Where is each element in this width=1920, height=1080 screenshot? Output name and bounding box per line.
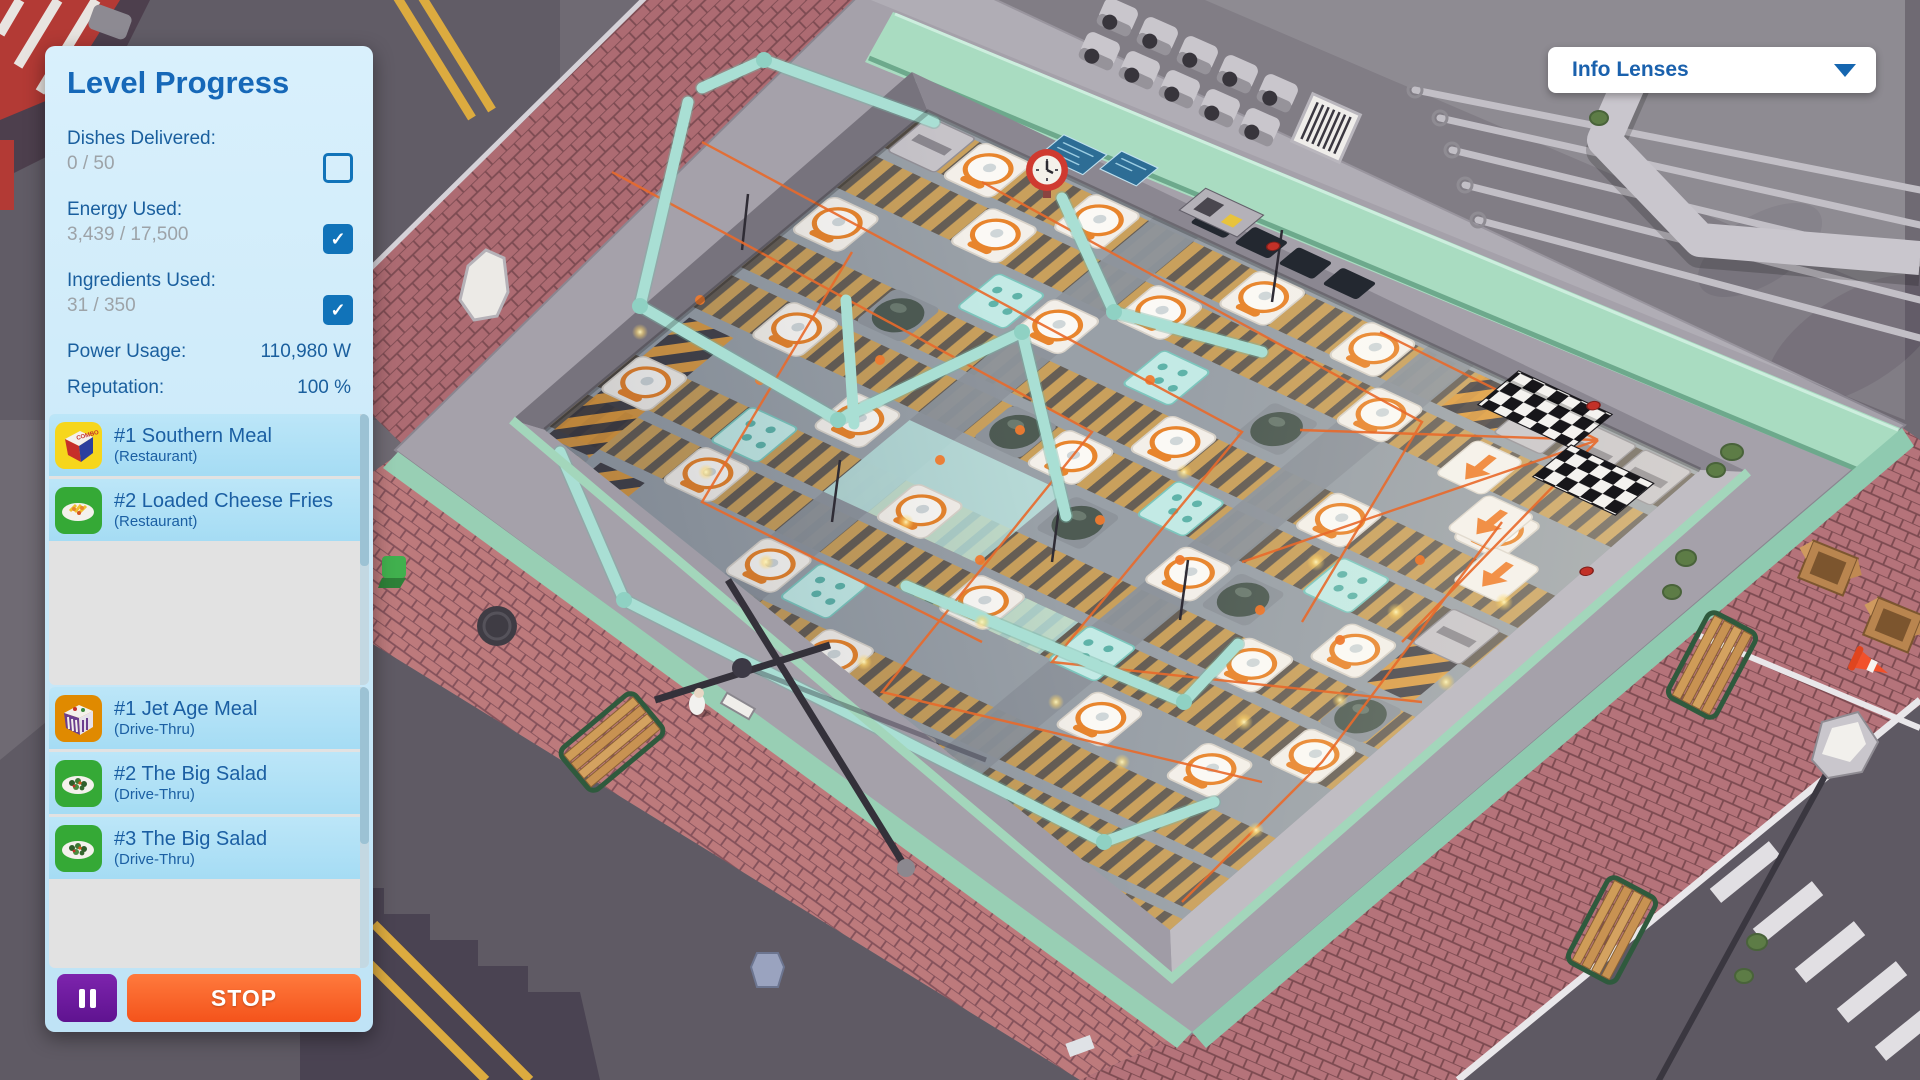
stop-button[interactable]: STOP	[127, 974, 361, 1022]
stats-section: Dishes Delivered: 0 / 50 ✓ Energy Used: …	[45, 126, 373, 318]
stat-ingredients-used: Ingredients Used: 31 / 350 ✓	[45, 268, 373, 318]
stat-checkbox[interactable]: ✓	[323, 224, 353, 254]
salad-plate-icon	[55, 825, 102, 872]
stat-value: 0 / 50	[67, 151, 351, 176]
stat-checkbox[interactable]: ✓	[323, 295, 353, 325]
scrollbar-thumb[interactable]	[360, 687, 369, 844]
order-name: #1 Jet Age Meal	[114, 697, 257, 721]
meter-value: 110,980 W	[261, 339, 351, 364]
order-row[interactable]: #1 Jet Age Meal (Drive-Thru)	[49, 687, 369, 749]
meter-label: Power Usage:	[67, 339, 186, 364]
order-name: #2 The Big Salad	[114, 762, 267, 786]
order-venue: (Drive-Thru)	[114, 786, 267, 804]
stat-value: 31 / 350	[67, 293, 351, 318]
pause-icon	[79, 989, 85, 1008]
stat-checkbox[interactable]: ✓	[323, 153, 353, 183]
order-row[interactable]: #2 Loaded Cheese Fries (Restaurant)	[49, 479, 369, 541]
drive-thru-order-list: #1 Jet Age Meal (Drive-Thru) #2 The Big …	[49, 687, 369, 968]
order-name: #2 Loaded Cheese Fries	[114, 489, 333, 513]
order-venue: (Drive-Thru)	[114, 851, 267, 869]
order-list-scrollbar[interactable]	[360, 414, 369, 685]
pause-button[interactable]	[57, 974, 117, 1022]
order-row[interactable]: #3 The Big Salad (Drive-Thru)	[49, 817, 369, 879]
order-row[interactable]: COMBO #1 Southern Meal (Restaurant)	[49, 414, 369, 476]
order-name: #1 Southern Meal	[114, 424, 272, 448]
stat-label: Energy Used:	[67, 197, 351, 222]
info-lenses-dropdown[interactable]: Info Lenses	[1548, 47, 1876, 93]
stat-label: Ingredients Used:	[67, 268, 351, 293]
power-usage-row: Power Usage: 110,980 W	[45, 339, 373, 364]
info-lenses-label: Info Lenses	[1572, 58, 1834, 82]
order-venue: (Restaurant)	[114, 448, 272, 466]
order-list-scrollbar[interactable]	[360, 687, 369, 968]
order-row[interactable]: #2 The Big Salad (Drive-Thru)	[49, 752, 369, 814]
reputation-row: Reputation: 100 %	[45, 375, 373, 400]
panel-title: Level Progress	[67, 62, 373, 104]
combo-meal-icon: COMBO	[55, 422, 102, 469]
stat-value: 3,439 / 17,500	[67, 222, 351, 247]
restaurant-order-list: COMBO #1 Southern Meal (Restaurant) #2 L…	[49, 414, 369, 685]
level-progress-panel: Level Progress Dishes Delivered: 0 / 50 …	[45, 46, 373, 1032]
game-screen: Level Progress Dishes Delivered: 0 / 50 …	[0, 0, 1920, 1080]
stat-label: Dishes Delivered:	[67, 126, 351, 151]
chevron-down-icon	[1834, 64, 1856, 77]
order-venue: (Restaurant)	[114, 513, 333, 531]
salad-plate-icon	[55, 760, 102, 807]
stat-energy-used: Energy Used: 3,439 / 17,500 ✓	[45, 197, 373, 247]
order-venue: (Drive-Thru)	[114, 721, 257, 739]
simulation-controls: STOP	[57, 974, 361, 1022]
jet-age-box-icon	[55, 695, 102, 742]
stat-dishes-delivered: Dishes Delivered: 0 / 50 ✓	[45, 126, 373, 176]
order-name: #3 The Big Salad	[114, 827, 267, 851]
meter-label: Reputation:	[67, 375, 164, 400]
scrollbar-thumb[interactable]	[360, 414, 369, 566]
fries-plate-icon	[55, 487, 102, 534]
meter-value: 100 %	[297, 375, 351, 400]
